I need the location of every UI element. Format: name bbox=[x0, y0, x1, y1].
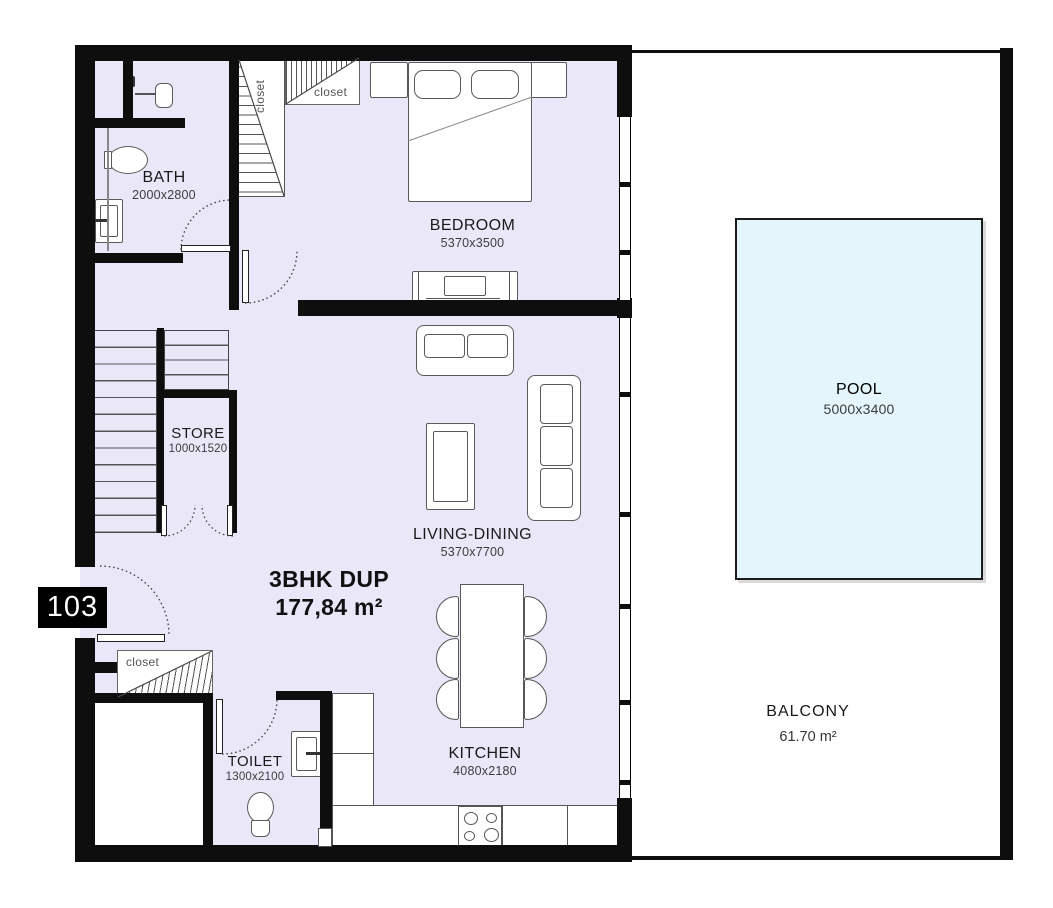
bath-name: BATH bbox=[108, 169, 220, 187]
balcony-name: BALCONY bbox=[730, 703, 886, 721]
living-label: LIVING-DINING 5370x7700 bbox=[390, 526, 555, 559]
living-name: LIVING-DINING bbox=[390, 526, 555, 544]
bath-dims: 2000x2800 bbox=[108, 188, 220, 202]
bedroom-dims: 5370x3500 bbox=[400, 236, 545, 250]
toilet-name: TOILET bbox=[204, 753, 306, 770]
unit-title: 3BHK DUP 177,84 m² bbox=[240, 566, 418, 621]
toilet-door-arc bbox=[222, 699, 277, 754]
kitchen-label: KITCHEN 4080x2180 bbox=[410, 745, 560, 778]
closet-stair-label: closet bbox=[253, 63, 267, 113]
closet-top-label: closet bbox=[314, 85, 347, 99]
kitchen-name: KITCHEN bbox=[410, 745, 560, 763]
bath-label: BATH 2000x2800 bbox=[108, 169, 220, 202]
balcony-label: BALCONY 61.70 m² bbox=[730, 703, 886, 745]
bed-fold-line bbox=[408, 97, 532, 141]
kitchen-dims: 4080x2180 bbox=[410, 764, 560, 778]
bedroom-name: BEDROOM bbox=[400, 217, 545, 235]
store-door-arc-right bbox=[202, 505, 233, 536]
toilet-label: TOILET 1300x2100 bbox=[204, 753, 306, 783]
balcony-area: 61.70 m² bbox=[730, 729, 886, 745]
bedroom-door-arc bbox=[245, 251, 297, 303]
unit-number: 103 bbox=[47, 591, 98, 624]
store-dims: 1000x1520 bbox=[158, 443, 238, 455]
store-label: STORE 1000x1520 bbox=[158, 425, 238, 455]
store-door-arc-left bbox=[164, 505, 195, 536]
living-dims: 5370x7700 bbox=[390, 545, 555, 559]
bedroom-label: BEDROOM 5370x3500 bbox=[400, 217, 545, 250]
toilet-dims: 1300x2100 bbox=[204, 771, 306, 783]
bath-door-arc bbox=[181, 200, 231, 250]
store-name: STORE bbox=[158, 425, 238, 442]
unit-number-badge: 103 bbox=[38, 587, 107, 628]
closet-entry-label: closet bbox=[126, 655, 159, 669]
floor-plan: POOL 5000x3400 BATH 2000x2800 BEDROOM 53… bbox=[0, 0, 1053, 908]
unit-type: 3BHK DUP bbox=[240, 566, 418, 594]
entry-door-arc bbox=[100, 566, 169, 635]
unit-area: 177,84 m² bbox=[240, 594, 418, 622]
